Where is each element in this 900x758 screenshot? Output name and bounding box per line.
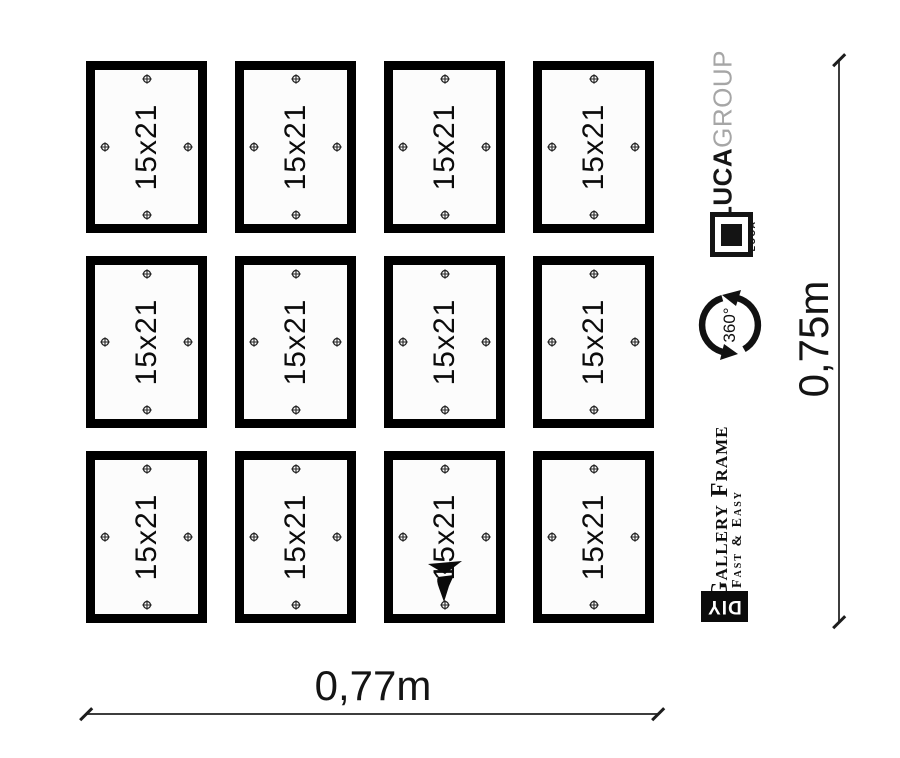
frame-size-label: 15x21 — [577, 494, 611, 581]
luca-logo-inner-square — [721, 224, 742, 246]
marker-top-icon — [439, 73, 451, 85]
marker-left-icon — [99, 531, 111, 543]
frame-size-label: 15x21 — [279, 299, 313, 386]
marker-top-icon — [439, 268, 451, 280]
marker-top-icon — [290, 73, 302, 85]
frame-size-label: 15x21 — [279, 104, 313, 191]
marker-bottom-icon — [290, 209, 302, 221]
marker-left-icon — [248, 336, 260, 348]
picture-frame: 15x21 — [235, 256, 356, 428]
marker-bottom-icon — [439, 209, 451, 221]
luca-group-wordmark: LUCAGROUP — [708, 50, 739, 222]
marker-right-icon — [331, 531, 343, 543]
marker-right-icon — [182, 531, 194, 543]
marker-left-icon — [248, 531, 260, 543]
picture-frame: 15x21 — [384, 256, 505, 428]
picture-frame: 15x21 — [86, 256, 207, 428]
marker-right-icon — [331, 141, 343, 153]
width-dimension-label: 0,77m — [315, 662, 432, 710]
marker-top-icon — [588, 73, 600, 85]
marker-bottom-icon — [141, 404, 153, 416]
picture-frame: 15x21 — [235, 61, 356, 233]
marker-top-icon — [290, 268, 302, 280]
height-dimension-label: 0,75m — [790, 281, 838, 398]
cursor-artifact-icon — [423, 556, 465, 604]
rotate-360-label: 360° — [720, 307, 740, 342]
marker-left-icon — [99, 141, 111, 153]
marker-left-icon — [397, 531, 409, 543]
marker-right-icon — [182, 336, 194, 348]
diy-badge: DIY — [701, 591, 748, 622]
marker-left-icon — [546, 531, 558, 543]
marker-bottom-icon — [588, 209, 600, 221]
marker-left-icon — [248, 141, 260, 153]
marker-top-icon — [141, 463, 153, 475]
marker-right-icon — [480, 336, 492, 348]
picture-frame: 15x21 — [86, 451, 207, 623]
marker-bottom-icon — [290, 404, 302, 416]
marker-top-icon — [588, 463, 600, 475]
marker-left-icon — [99, 336, 111, 348]
width-dimension-line — [86, 713, 658, 715]
marker-bottom-icon — [439, 404, 451, 416]
picture-frame: 15x21 — [533, 256, 654, 428]
picture-frame: 15x21 — [384, 61, 505, 233]
marker-top-icon — [141, 73, 153, 85]
frame-size-label: 15x21 — [577, 299, 611, 386]
frame-size-label: 15x21 — [279, 494, 313, 581]
product-name-line2: Fast & Easy — [731, 390, 745, 588]
marker-right-icon — [331, 336, 343, 348]
gallery-frame-layout-diagram: 15x2115x2115x2115x2115x2115x2115x2115x21… — [0, 0, 900, 758]
frame-size-label: 15x21 — [428, 104, 462, 191]
product-name: Gallery Frame Fast & Easy — [709, 390, 745, 600]
marker-right-icon — [629, 141, 641, 153]
height-dimension-line — [838, 60, 840, 622]
frame-size-label: 15x21 — [130, 494, 164, 581]
marker-right-icon — [629, 336, 641, 348]
marker-left-icon — [397, 141, 409, 153]
marker-top-icon — [141, 268, 153, 280]
picture-frame: 15x21 — [533, 451, 654, 623]
picture-frame: 15x21 — [86, 61, 207, 233]
marker-left-icon — [397, 336, 409, 348]
picture-frame: 15x21 — [235, 451, 356, 623]
frame-size-label: 15x21 — [130, 299, 164, 386]
marker-right-icon — [182, 141, 194, 153]
frame-size-label: 15x21 — [577, 104, 611, 191]
marker-bottom-icon — [588, 404, 600, 416]
marker-bottom-icon — [588, 599, 600, 611]
marker-left-icon — [546, 141, 558, 153]
marker-right-icon — [629, 531, 641, 543]
luca-logo-text: LUCA — [747, 221, 757, 252]
picture-frame: 15x21 — [533, 61, 654, 233]
marker-bottom-icon — [290, 599, 302, 611]
diy-badge-label: DIY — [707, 597, 742, 616]
marker-bottom-icon — [141, 209, 153, 221]
frame-size-label: 15x21 — [428, 299, 462, 386]
marker-left-icon — [546, 336, 558, 348]
marker-top-icon — [588, 268, 600, 280]
luca-group-wordmark-group: GROUP — [708, 50, 738, 148]
product-name-line1: Gallery Frame — [709, 390, 731, 600]
marker-right-icon — [480, 141, 492, 153]
frame-size-label: 15x21 — [130, 104, 164, 191]
marker-top-icon — [439, 463, 451, 475]
marker-right-icon — [480, 531, 492, 543]
marker-bottom-icon — [141, 599, 153, 611]
marker-top-icon — [290, 463, 302, 475]
luca-group-wordmark-luca: LUCA — [708, 148, 738, 222]
